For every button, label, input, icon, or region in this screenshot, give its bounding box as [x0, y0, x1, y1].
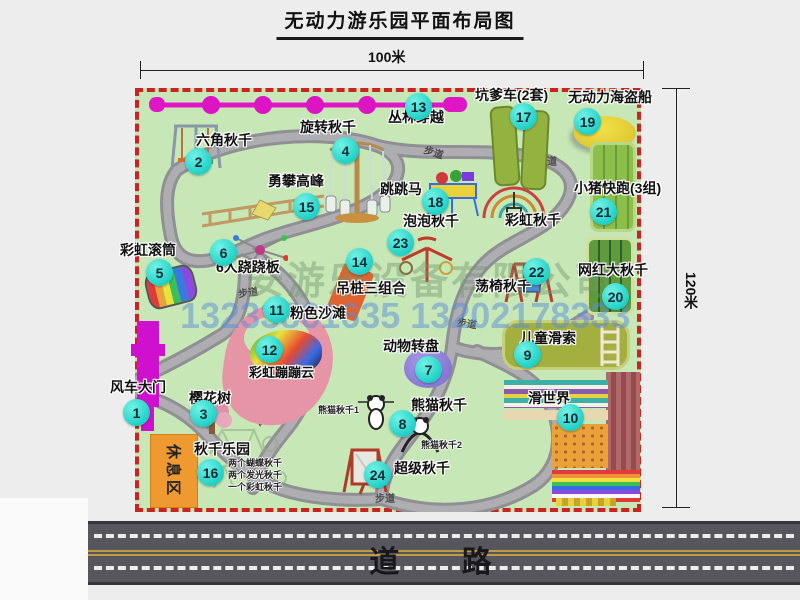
label-rainbow-roller: 彩虹滚筒: [120, 243, 176, 258]
badge-5: 5: [146, 259, 173, 286]
badge-23: 23: [387, 229, 414, 256]
park-layout-map: 无动力游乐园平面布局图 100米 120米 步道 步道: [0, 0, 800, 600]
rest-area-label: 休息区: [164, 444, 185, 498]
label-slide-world: 滑世界: [528, 391, 570, 406]
label-jumping-horse: 跳跳马: [380, 182, 422, 197]
label-rainbow-bounce-cloud: 彩虹蹦蹦云: [249, 366, 314, 380]
badge-1: 1: [123, 399, 150, 426]
label-panda-swing-1: 熊猫秋千1: [318, 403, 359, 416]
badge-22: 22: [523, 258, 550, 285]
label-rainbow-swing: 彩虹秋千: [505, 213, 561, 228]
width-dimension-line: [140, 70, 644, 71]
label-panda-swing: 熊猫秋千: [411, 398, 467, 413]
badge-14: 14: [346, 248, 373, 275]
road-label: 道 路: [88, 537, 800, 581]
badge-13: 13: [405, 93, 432, 120]
label-swing-chair: 荡椅秋千: [475, 279, 531, 294]
badge-9: 9: [514, 341, 541, 368]
height-dimension-tick-top: [662, 88, 690, 89]
badge-11: 11: [263, 296, 290, 323]
badge-3: 3: [190, 400, 217, 427]
label-windmill-gate: 风车大门: [110, 380, 166, 395]
badge-8: 8: [389, 410, 416, 437]
label-carousel-swing: 旋转秋千: [300, 120, 356, 135]
badge-15: 15: [293, 193, 320, 220]
label-piggy-run: 小猪快跑(3组): [574, 181, 661, 196]
label-hexagon-swing: 六角秋千: [196, 133, 252, 148]
label-pink-beach: 粉色沙滩: [290, 306, 346, 321]
height-dimension-line: [676, 88, 677, 508]
badge-17: 17: [510, 103, 537, 130]
rest-area: 休息区: [150, 434, 198, 508]
label-super-swing: 超级秋千: [394, 461, 450, 476]
width-dimension-label: 100米: [368, 47, 405, 67]
label-swing-note-3: 一个彩虹秋千: [228, 480, 282, 493]
badge-21: 21: [590, 198, 617, 225]
label-big-swing: 网红大秋千: [578, 263, 648, 278]
badge-2: 2: [185, 148, 212, 175]
slide-world-steps: [556, 498, 616, 506]
label-hanging-post-combo: 吊桩三组合: [336, 281, 406, 296]
label-bubble-swing: 泡泡秋千: [403, 214, 459, 229]
label-animal-turntable: 动物转盘: [383, 339, 439, 354]
badge-16: 16: [197, 459, 224, 486]
width-dimension-tick-left: [140, 61, 141, 79]
badge-7: 7: [415, 356, 442, 383]
badge-6: 6: [210, 239, 237, 266]
badge-10: 10: [557, 404, 584, 431]
badge-19: 19: [574, 108, 601, 135]
road: 道 路: [88, 521, 800, 585]
label-panda-swing-2: 熊猫秋千2: [421, 438, 462, 451]
slide-world-icon: [500, 372, 640, 506]
badge-20: 20: [602, 283, 629, 310]
height-dimension-label: 120米: [681, 272, 701, 309]
label-pirate-ship: 无动力海盗船: [568, 90, 652, 105]
windmill-gate-cross: [131, 344, 165, 356]
label-climbing-peak: 勇攀高峰: [268, 174, 324, 189]
width-dimension-tick-right: [643, 61, 644, 79]
slide-world-ballpit: [552, 424, 608, 468]
road-left-margin: [0, 498, 88, 600]
page-title: 无动力游乐园平面布局图: [276, 6, 523, 40]
badge-12: 12: [256, 336, 283, 363]
badge-18: 18: [422, 188, 449, 215]
badge-24: 24: [364, 461, 391, 488]
label-pit-car: 坑爹车(2套): [475, 88, 548, 103]
slide-world-strip: [504, 410, 608, 420]
badge-4: 4: [332, 137, 359, 164]
height-dimension-tick-bottom: [662, 507, 690, 508]
